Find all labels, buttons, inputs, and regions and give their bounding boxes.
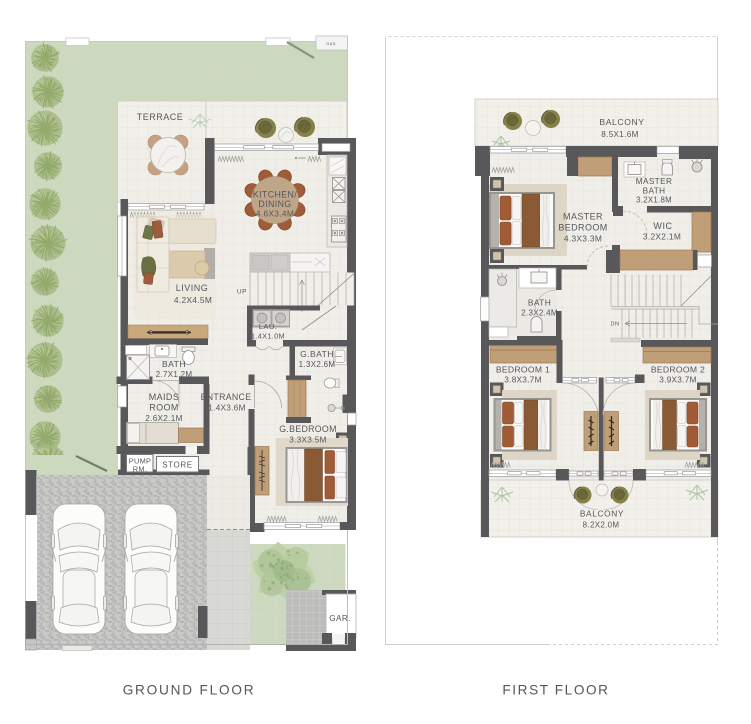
svg-text:3.2X2.1M: 3.2X2.1M xyxy=(643,232,681,242)
svg-text:4.3X3.3M: 4.3X3.3M xyxy=(564,234,602,244)
svg-text:G.BEDROOM: G.BEDROOM xyxy=(279,424,336,434)
svg-text:2.7X1.2M: 2.7X1.2M xyxy=(156,370,193,379)
svg-text:STORE: STORE xyxy=(162,461,192,470)
svg-text:BEDROOM 2: BEDROOM 2 xyxy=(651,365,705,375)
svg-text:8.5X1.6M: 8.5X1.6M xyxy=(601,130,638,139)
svg-text:4.2X4.5M: 4.2X4.5M xyxy=(174,295,212,305)
svg-text:G.BATH: G.BATH xyxy=(300,349,334,359)
svg-text:GROUND FLOOR: GROUND FLOOR xyxy=(123,683,256,698)
svg-text:1.4X1.0M: 1.4X1.0M xyxy=(251,332,285,341)
svg-text:1.3X2.6M: 1.3X2.6M xyxy=(299,360,336,369)
svg-text:BEDROOM 1: BEDROOM 1 xyxy=(496,365,550,375)
svg-text:BATH: BATH xyxy=(162,359,186,369)
svg-text:UP: UP xyxy=(237,289,247,296)
svg-text:BALCONY: BALCONY xyxy=(599,117,644,127)
svg-text:BEDROOM: BEDROOM xyxy=(558,223,607,233)
svg-text:LAU.: LAU. xyxy=(259,322,277,331)
svg-text:MASTER: MASTER xyxy=(563,212,603,222)
svg-text:2.3X2.4M: 2.3X2.4M xyxy=(521,309,558,318)
svg-text:BALCONY: BALCONY xyxy=(580,509,624,519)
svg-text:4.6X3.4M: 4.6X3.4M xyxy=(256,209,294,219)
svg-text:DN: DN xyxy=(610,322,619,328)
svg-text:KITCHEN/: KITCHEN/ xyxy=(253,190,297,200)
svg-text:ENTRANCE: ENTRANCE xyxy=(201,392,252,402)
svg-text:WIC: WIC xyxy=(653,221,672,231)
svg-text:BATH: BATH xyxy=(528,298,551,308)
svg-text:RM.: RM. xyxy=(133,465,147,474)
svg-text:FIRST FLOOR: FIRST FLOOR xyxy=(502,683,609,698)
svg-text:3.2X1.8M: 3.2X1.8M xyxy=(636,196,672,205)
svg-text:8.2X2.0M: 8.2X2.0M xyxy=(583,521,620,530)
svg-text:MAIDS: MAIDS xyxy=(149,392,180,402)
svg-text:TERRACE: TERRACE xyxy=(137,112,184,122)
svg-text:3.9X3.7M: 3.9X3.7M xyxy=(659,376,696,385)
svg-text:DINING: DINING xyxy=(258,199,291,209)
svg-text:MASTER: MASTER xyxy=(636,177,673,186)
svg-text:GAS: GAS xyxy=(326,41,336,46)
svg-text:1.4X3.6M: 1.4X3.6M xyxy=(208,404,245,413)
svg-text:BATH: BATH xyxy=(643,187,666,196)
svg-text:GAR.: GAR. xyxy=(329,614,351,623)
svg-text:LIVING: LIVING xyxy=(176,283,209,293)
svg-text:3.8X3.7M: 3.8X3.7M xyxy=(504,376,541,385)
svg-text:ROOM: ROOM xyxy=(149,403,179,413)
svg-text:3.3X3.5M: 3.3X3.5M xyxy=(289,436,326,445)
svg-text:2.6X2.1M: 2.6X2.1M xyxy=(145,414,182,423)
